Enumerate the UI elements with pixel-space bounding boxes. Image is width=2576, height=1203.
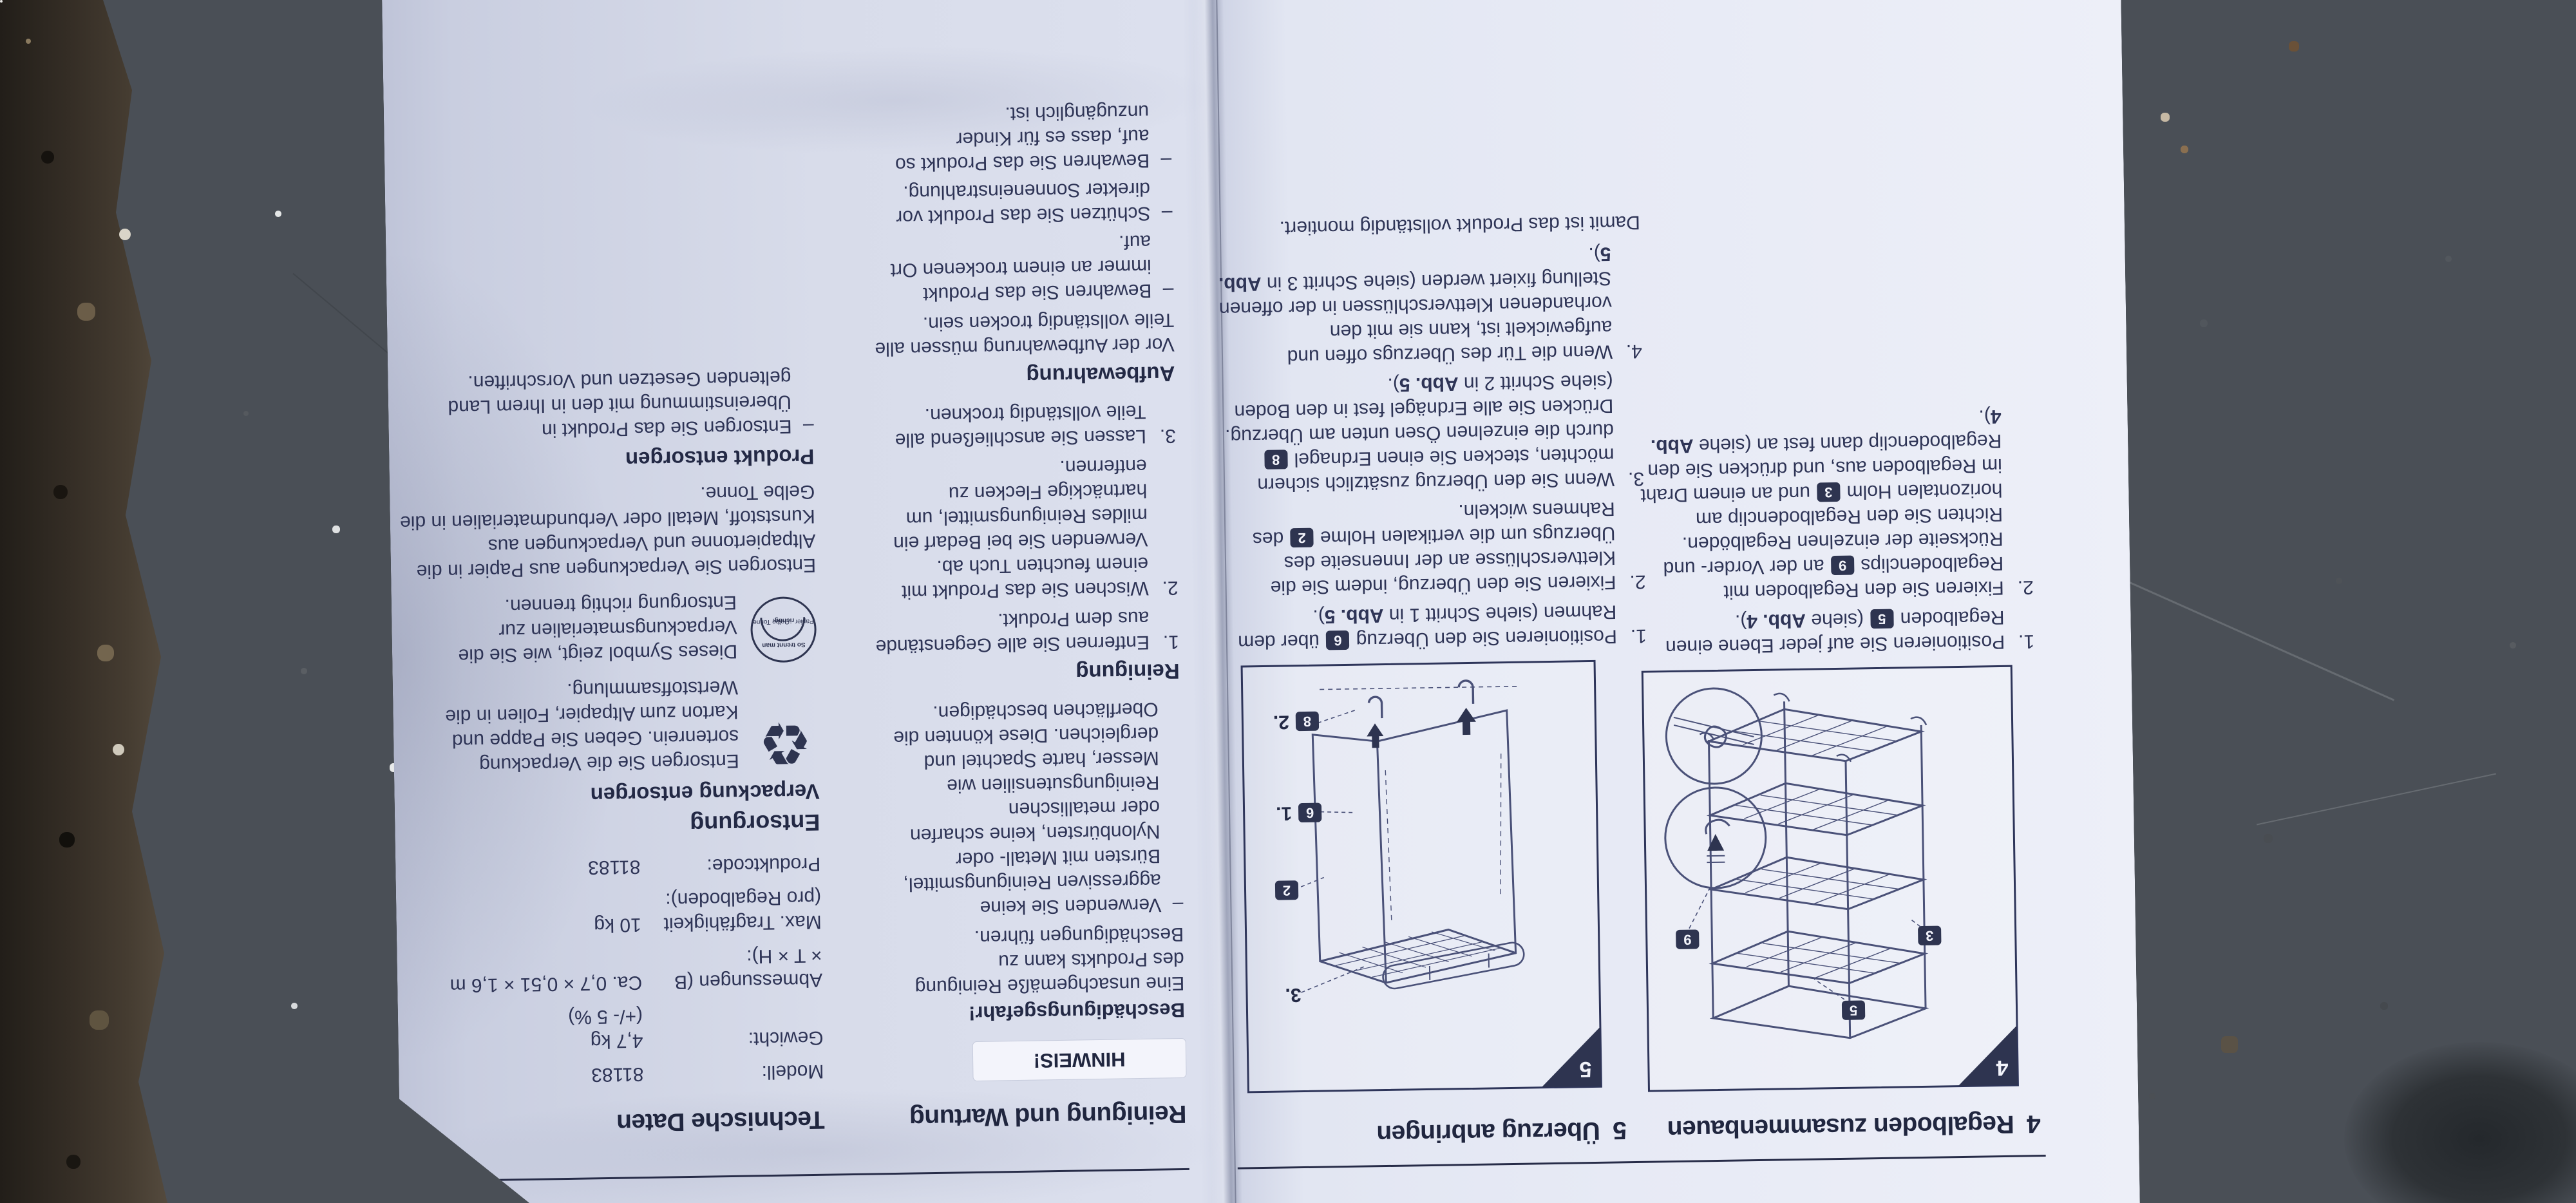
dark-stain (2344, 1042, 2576, 1203)
part-badge-pole: 2 (1275, 880, 1298, 900)
section-5-number: 5 (1613, 1115, 1627, 1144)
dash-bullet: –Verwenden Sie keine aggressiven Reinigu… (876, 696, 1183, 921)
step-label: 2. (1273, 710, 1290, 732)
figure-step-label-1: 6 1. (1276, 802, 1323, 824)
tech-value: 81183 (588, 854, 641, 879)
section-4-steps: 1.Positionieren Sie auf jeder Ebene eine… (1639, 398, 2034, 659)
step-item: 3.Lassen Sie anschließend alle Teile vol… (871, 399, 1176, 452)
section-5-title: Überzug anbringen (1377, 1116, 1600, 1148)
figure-4-panel: 4 (1642, 665, 2019, 1092)
storage-bullets: –Bewahren Sie das Produkt immer an einem… (867, 99, 1174, 307)
figure-step-label-3: 3. (1285, 983, 1302, 1005)
care-page-title: Reinigung und Wartung (909, 1099, 1187, 1132)
scratch-mark (2257, 773, 2496, 826)
figure-4-illustration (1643, 667, 2017, 1090)
part-badge: 9 (1831, 556, 1854, 576)
part-badge: 3 (1817, 482, 1840, 502)
part-badge-cover: 6 (1298, 803, 1321, 823)
tech-table: Modell:81183Gewicht:4,7 kg(+/- 5 %)Abmes… (402, 851, 824, 1090)
section-5-header: 5 Überzug anbringen (1377, 1115, 1627, 1148)
product-disposal-bullets: –Entsorgen Sie das Produkt in Übereinsti… (394, 365, 814, 444)
photo-scene: 4 Regalboden zusammenbauen 4 (0, 0, 2576, 1203)
tech-column: Modell:81183Gewicht:4,7 kg(+/- 5 %)Abmes… (394, 361, 824, 1090)
waste-sorting-icon: So trennt man richtig: Papier · Gelbe To… (750, 589, 818, 663)
tech-value: Ca. 0,7 × 0,51 × 1,6 m (450, 945, 643, 998)
dash-bullet: –Entsorgen Sie das Produkt in Übereinsti… (394, 365, 814, 444)
packaging-disposal-title: Verpackung entsorgen (401, 779, 820, 810)
section-5-text: 1.Positionieren Sie den Überzug 6 über d… (1215, 210, 1647, 654)
tech-table-row: Produktcode:81183 (402, 851, 821, 882)
notice-box: HINWEIS! (973, 1039, 1186, 1081)
recycle-paragraph: ♻ Entsorgen Sie die Verpackung sortenrei… (399, 674, 819, 778)
rubble-strip (0, 0, 196, 1203)
sorting-symbol-text: Dieses Symbol zeigt, wie Sie die Verpack… (398, 590, 738, 668)
recycling-icon: ♻ (751, 674, 819, 773)
sorting-paragraph: So trennt man richtig: Papier · Gelbe To… (398, 589, 818, 668)
header-rule-right-page (417, 1168, 1189, 1182)
part-badge: 8 (1264, 450, 1287, 469)
tech-label: Abmessungen (B × T × H): (659, 943, 822, 994)
tech-table-row: Max. Tragfähigkeit (pro Regalboden):10 k… (402, 885, 822, 940)
step-item: 2.Wischen Sie das Produkt mit einem feuc… (872, 453, 1179, 604)
tech-value: 81183 (591, 1061, 644, 1086)
part-badge: 5 (1870, 609, 1893, 629)
tech-value: 10 kg (593, 887, 641, 937)
part-badge-clip: 9 (1676, 929, 1699, 949)
warning-title: Beschädigungsgefahr! (881, 998, 1186, 1027)
tech-table-row: Gewicht:4,7 kg(+/- 5 %) (404, 1001, 824, 1056)
part-badge: 6 (1326, 630, 1349, 650)
figure-step-label-2: 8 2. (1273, 710, 1321, 733)
step-item: 3.Wenn Sie den Überzug zusätzlich sicher… (1217, 368, 1644, 497)
tech-label: Modell: (661, 1059, 824, 1086)
packaging-extra-text: Entsorgen Sie Verpackungen aus Papier in… (396, 479, 816, 583)
recycle-text: Entsorgen Sie die Verpackung sortenrein.… (399, 675, 739, 778)
step-label: 1. (1276, 802, 1293, 824)
tech-label: Gewicht: (661, 1001, 824, 1052)
warning-intro: Eine unsachgemäße Reinigung des Produkts… (880, 922, 1185, 999)
disposal-title: Entsorgung (401, 810, 820, 841)
section-5-steps: 1.Positionieren Sie den Überzug 6 über d… (1215, 241, 1647, 654)
step-item: 1.Positionieren Sie den Überzug 6 über d… (1221, 599, 1647, 654)
scratch-mark (2088, 563, 2394, 701)
leaflet-sheet-upside-down: 4 Regalboden zusammenbauen 4 (382, 0, 2140, 1203)
section-4-number: 4 (2027, 1109, 2041, 1137)
tech-value: 4,7 kg(+/- 5 %) (568, 1003, 643, 1054)
tech-label: Max. Tragfähigkeit (pro Regalboden): (659, 885, 822, 936)
rubble-texture (26, 39, 31, 44)
cleaning-title: Reinigung (875, 659, 1180, 688)
storage-intro: Vor der Aufbewahrung müssen alle Teile v… (870, 307, 1175, 361)
part-badge-shelf: 5 (1842, 1000, 1865, 1020)
dash-bullet: –Bewahren Sie das Produkt so auf, dass e… (867, 99, 1172, 176)
care-column: HINWEIS! Beschädigungsgefahr! Eine unsac… (867, 95, 1186, 1082)
header-rule-left-page (1238, 1155, 2046, 1170)
part-badge: 2 (1290, 528, 1313, 548)
dash-bullet: –Schützen Sie das Produkt vor direkter S… (868, 176, 1173, 229)
step-item: 4.Wenn die Tür des Überzugs offen und au… (1215, 241, 1642, 370)
warning-bullets: –Verwenden Sie keine aggressiven Reinigu… (876, 696, 1183, 921)
part-badge-peg: 8 (1296, 712, 1319, 732)
closing-sentence: Damit ist das Produkt vollständig montie… (1215, 210, 1641, 241)
part-badge-holm: 3 (1918, 925, 1941, 945)
step-item: 2.Fixieren Sie den Regalboden mit Regalb… (1639, 403, 2034, 605)
tech-page-title: Technische Daten (616, 1105, 825, 1137)
concrete-speckles (0, 0, 3, 3)
step-label: 3. (1285, 983, 1302, 1005)
figure-5-panel: 5 (1241, 660, 1602, 1094)
section-4-header: 4 Regalboden zusammenbauen (1667, 1109, 2041, 1143)
tech-table-row: Abmessungen (B × T × H):Ca. 0,7 × 0,51 ×… (403, 943, 822, 998)
cleaning-steps: 1.Entfernen Sie alle Gegenstände aus dem… (871, 399, 1179, 658)
tech-table-row: Modell:81183 (405, 1059, 824, 1090)
instruction-leaflet: 4 Regalboden zusammenbauen 4 (382, 0, 2140, 1203)
section-4-title: Regalboden zusammenbauen (1667, 1110, 2014, 1143)
tech-label: Produktcode: (658, 851, 821, 878)
dash-bullet: –Bewahren Sie das Produkt immer an einem… (869, 229, 1174, 307)
product-disposal-title: Produkt entsorgen (395, 444, 815, 475)
sorting-icon-bottom-text: Papier · Gelbe Tonne (752, 609, 815, 634)
figure-part-pole: 2 (1274, 880, 1300, 900)
storage-title: Aufbewahrung (871, 361, 1175, 390)
step-item: 1.Positionieren Sie auf jeder Ebene eine… (1642, 604, 2034, 659)
step-item: 2.Fixieren Sie den Überzug, indem Sie di… (1220, 496, 1646, 600)
notice-label: HINWEIS! (1033, 1047, 1126, 1072)
step-item: 1.Entfernen Sie alle Gegenstände aus dem… (875, 605, 1179, 658)
